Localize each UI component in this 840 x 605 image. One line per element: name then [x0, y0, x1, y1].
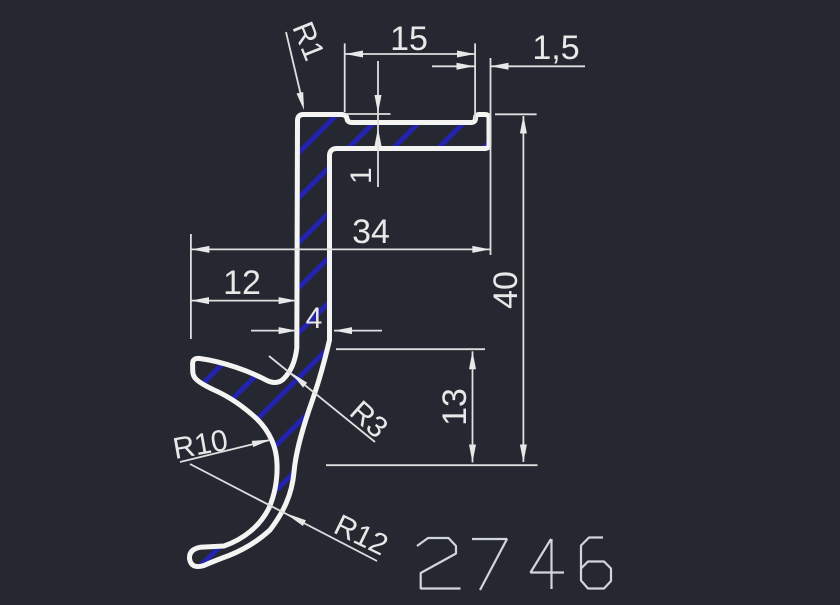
- svg-text:34: 34: [352, 213, 390, 251]
- svg-text:4: 4: [306, 302, 323, 335]
- svg-text:13: 13: [436, 388, 474, 426]
- svg-text:15: 15: [390, 20, 428, 58]
- svg-text:12: 12: [223, 264, 261, 302]
- svg-text:40: 40: [487, 271, 525, 309]
- svg-text:1: 1: [345, 167, 378, 184]
- svg-text:1,5: 1,5: [532, 29, 579, 67]
